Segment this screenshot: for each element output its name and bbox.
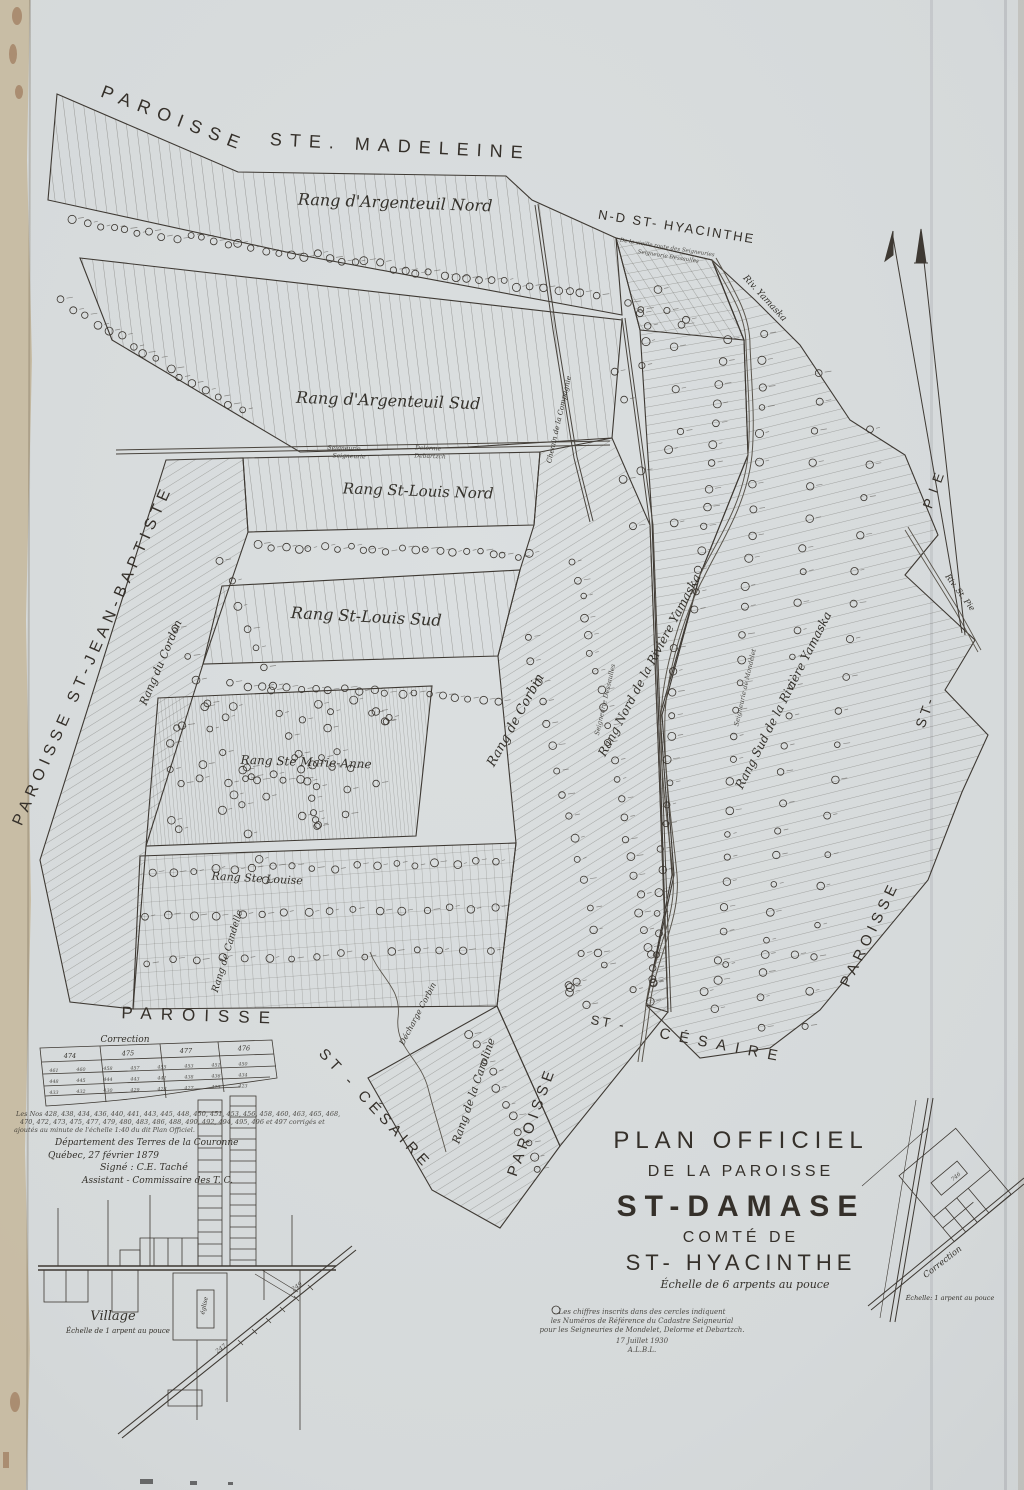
- title-st-damase: ST-DAMASE: [617, 1190, 866, 1223]
- svg-text:430: 430: [102, 1088, 112, 1094]
- fold-crease-2: [1004, 0, 1007, 1490]
- map-sheet: PAROISSE STE. MADELEINE N-D ST- HYACINTH…: [0, 0, 1024, 1490]
- svg-text:427: 427: [183, 1086, 194, 1092]
- svg-text:441: 441: [156, 1075, 166, 1081]
- svg-text:476: 476: [237, 1045, 250, 1053]
- seigneurie-label-delorme: Delorme: [414, 445, 442, 453]
- svg-text:433: 433: [48, 1090, 58, 1096]
- parish-map-svg: PAROISSE STE. MADELEINE N-D ST- HYACINTH…: [0, 0, 1024, 1490]
- svg-text:445: 445: [75, 1078, 85, 1084]
- svg-text:461: 461: [48, 1068, 58, 1074]
- title-plan-officiel: PLAN OFFICIEL: [613, 1127, 868, 1154]
- svg-text:475: 475: [121, 1050, 134, 1058]
- title-de-la-paroisse: DE LA PAROISSE: [648, 1163, 834, 1180]
- note-place-date: Québec, 27 février 1879: [48, 1150, 159, 1161]
- svg-text:434: 434: [237, 1073, 247, 1079]
- seigneurie-label-debartzch: Debartzch: [413, 452, 446, 460]
- seigneurie-label-1: Seigneurie: [327, 444, 361, 452]
- svg-text:451: 451: [210, 1063, 220, 1069]
- village-inset-scale: Échelle de 1 arpent au pouce: [65, 1326, 170, 1335]
- svg-text:460: 460: [75, 1067, 85, 1073]
- svg-text:474: 474: [63, 1052, 76, 1060]
- correction-table-title: Correction: [101, 1035, 150, 1045]
- svg-text:428: 428: [156, 1086, 166, 1092]
- svg-text:423: 423: [237, 1084, 247, 1090]
- svg-text:458: 458: [102, 1066, 112, 1072]
- legend-note-line-2: les Numéros de Référence du Cadastre Sei…: [551, 1317, 734, 1325]
- svg-text:448: 448: [48, 1079, 58, 1085]
- svg-text:453: 453: [183, 1064, 193, 1070]
- svg-text:432: 432: [75, 1089, 85, 1095]
- svg-text:477: 477: [179, 1047, 193, 1055]
- legend-note-line-3: pour les Seigneuries de Mondelet, Delorm…: [540, 1326, 745, 1334]
- note-paragraph-2: 470, 472, 473, 475, 477, 479, 480, 483, …: [19, 1118, 325, 1126]
- svg-text:457: 457: [129, 1065, 140, 1071]
- note-paragraph-3: ajoutés au minute de l'échelle 1:40 du d…: [14, 1126, 195, 1134]
- seigneurie-label-2: Seigneurie: [332, 452, 366, 460]
- note-department: Département des Terres de la Couronne: [54, 1137, 238, 1148]
- svg-text:425: 425: [210, 1085, 220, 1091]
- note-signature: Signé : C.E. Taché: [100, 1162, 188, 1173]
- title-scale-note: Échelle de 6 arpents au pouce: [660, 1277, 830, 1291]
- legend-note-line-1: Les chiffres inscrits dans des cercles i…: [558, 1308, 726, 1316]
- svg-text:438: 438: [183, 1075, 193, 1081]
- legend-note-date: 17 Juillet 1930: [616, 1337, 669, 1345]
- village-inset-title: Village: [90, 1309, 136, 1324]
- svg-text:450: 450: [237, 1062, 247, 1068]
- svg-text:429: 429: [129, 1087, 139, 1093]
- sheet-right-edge: [1018, 0, 1024, 1490]
- title-st-hyacinthe: ST- HYACINTHE: [626, 1250, 857, 1275]
- svg-text:455: 455: [156, 1064, 166, 1070]
- note-role: Assistant - Commissaire des T. C.: [81, 1176, 233, 1186]
- note-paragraph-1: Les Nos 428, 438, 434, 436, 440, 441, 44…: [15, 1110, 340, 1118]
- svg-text:436: 436: [210, 1074, 220, 1080]
- legend-note-initials: A.L.B.L.: [627, 1346, 656, 1354]
- svg-text:444: 444: [102, 1077, 112, 1083]
- block-ste-louise: [133, 843, 516, 1009]
- svg-text:443: 443: [129, 1076, 139, 1082]
- corner-inset-scale: Échelle: 1 arpent au pouce: [905, 1293, 995, 1302]
- title-comte-de: COMTÉ DE: [683, 1227, 799, 1246]
